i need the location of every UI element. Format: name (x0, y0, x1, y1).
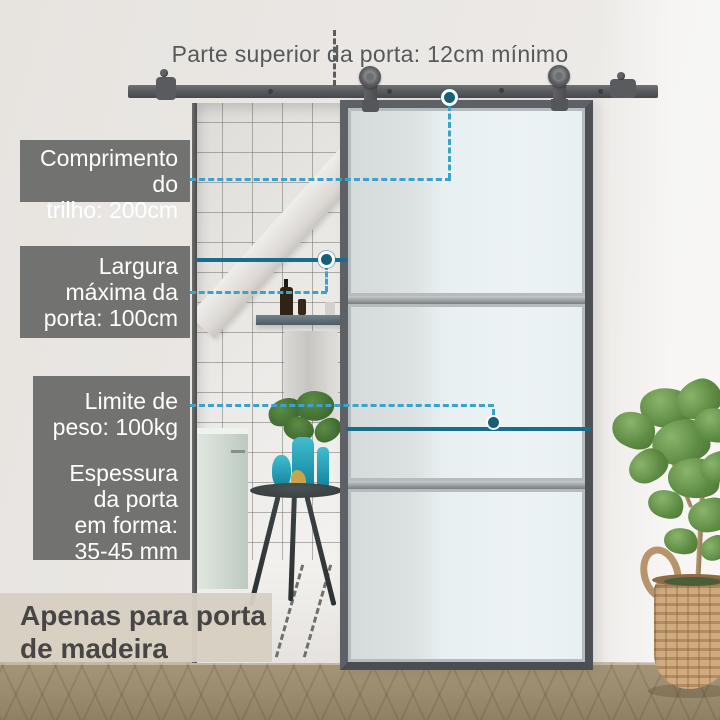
door-mid-rail (348, 296, 585, 304)
footer-line: de madeira (20, 632, 272, 665)
callout-line: 35-45 mm (33, 538, 178, 564)
footer-line: Apenas para porta (20, 599, 272, 632)
top-note: Parte superior da porta: 12cm mínimo (130, 41, 610, 68)
barn-door-track (128, 85, 658, 98)
glass-panel-top (348, 108, 585, 296)
product-infographic: Parte superior da porta: 12cm mínimo Com… (0, 0, 720, 720)
wood-floor (0, 662, 720, 720)
anchor-dot-weight (488, 417, 499, 428)
callout-line: Espessura (33, 460, 178, 486)
track-screw (598, 89, 603, 94)
leader-track-length-v (448, 105, 451, 179)
callout-line: porta: 100cm (20, 305, 178, 331)
roller-wheel-right (548, 65, 570, 87)
wicker-basket (654, 579, 720, 689)
weight-measure-line (346, 427, 591, 431)
small-bottle (298, 299, 306, 315)
bathroom-cabinet (195, 428, 248, 589)
callout-line: da porta (33, 486, 178, 512)
side-table (250, 483, 342, 498)
callout-line: Comprimento do (20, 145, 178, 197)
end-stop-bolt (617, 72, 625, 80)
canister (325, 302, 335, 315)
track-screw (499, 88, 504, 93)
glass-panel-middle (348, 304, 585, 481)
door-mid-rail (348, 481, 585, 489)
bathroom-view (192, 103, 346, 663)
sliding-glass-door (340, 100, 593, 670)
leader-weight-h (190, 404, 494, 407)
glass-panel-bottom (348, 489, 585, 662)
track-screw (387, 89, 392, 94)
callout-line: em forma: (33, 512, 178, 538)
callout-line: máxima da (20, 279, 178, 305)
wall-shelf (256, 315, 346, 325)
footer-note: Apenas para porta de madeira (0, 593, 272, 662)
anchor-dot-track (444, 92, 455, 103)
basket-soil (664, 577, 720, 586)
callout-line: Limite de (33, 388, 178, 414)
track-end-stop-left (156, 77, 176, 100)
teal-glass-vase (317, 447, 329, 489)
callout-spacer (33, 440, 178, 460)
leader-door-width-h (190, 291, 327, 294)
cabinet-handle (231, 450, 245, 453)
callout-line: trilho: 200cm (20, 197, 178, 223)
callout-line: Largura (20, 253, 178, 279)
leader-door-width-v (325, 264, 328, 292)
end-stop-bolt (160, 69, 168, 77)
leader-track-length-h (190, 178, 451, 181)
callout-line: peso: 100kg (33, 414, 178, 440)
door-jamb (192, 103, 197, 663)
roller-wheel-left (359, 66, 381, 88)
hanger-plate-right (551, 99, 568, 111)
hanger-plate-left (362, 100, 379, 112)
callout-track-length: Comprimento do trilho: 200cm (20, 140, 190, 202)
anchor-dot-width (321, 254, 332, 265)
track-end-stop-right (610, 79, 636, 98)
sloped-ceiling (192, 137, 346, 338)
track-screw (268, 89, 273, 94)
callout-weight-thickness: Limite de peso: 100kg Espessura da porta… (33, 376, 190, 560)
callout-door-width: Largura máxima da porta: 100cm (20, 246, 190, 338)
